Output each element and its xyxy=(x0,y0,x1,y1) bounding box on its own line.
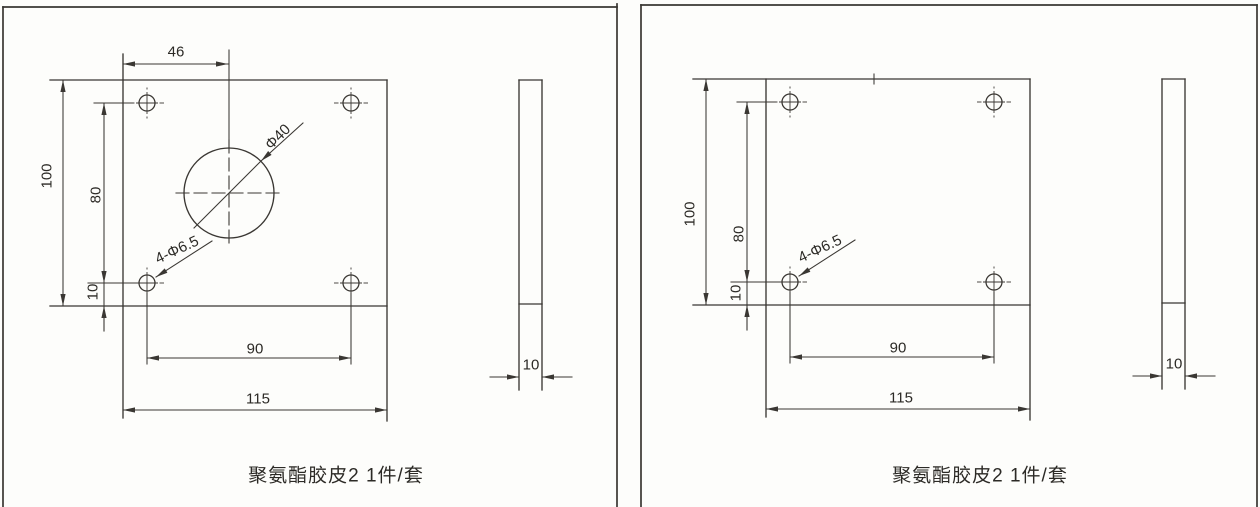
dim-115-label: 115 xyxy=(889,390,913,407)
dim-90-label: 90 xyxy=(247,341,264,358)
corner-hole-label: 4-Φ6.5 xyxy=(795,232,844,267)
dim-100-label: 100 xyxy=(682,201,699,226)
front-view: 4-Φ6.5 100 80 10 90 115 xyxy=(682,74,1031,420)
dim-10-label: 10 xyxy=(728,285,745,302)
caption-text: 聚氨酯胶皮2 1件/套 xyxy=(892,465,1068,487)
corner-hole-mark xyxy=(977,87,1011,118)
front-view: Φ40 4-Φ6.5 46 100 80 10 90 xyxy=(39,44,388,422)
dim-46-label: 46 xyxy=(168,44,185,61)
center-hole-label: Φ40 xyxy=(262,121,294,153)
side-view: 10 xyxy=(1133,79,1215,389)
corner-hole-mark xyxy=(130,88,164,119)
side-view: 10 xyxy=(490,80,572,390)
caption-text: 聚氨酯胶皮2 1件/套 xyxy=(248,465,424,487)
corner-hole-label: 4-Φ6.5 xyxy=(152,233,201,268)
side-dim-10-label: 10 xyxy=(523,357,540,374)
dim-80-label: 80 xyxy=(88,187,105,204)
phi40-diameter-line xyxy=(194,161,261,228)
drawing-canvas: Φ40 4-Φ6.5 46 100 80 10 90 xyxy=(0,0,1260,507)
dim-100-label: 100 xyxy=(39,163,56,188)
dim-115-label: 115 xyxy=(246,391,270,408)
left-panel: Φ40 4-Φ6.5 46 100 80 10 90 xyxy=(3,4,617,507)
dim-10-label: 10 xyxy=(85,284,102,301)
right-panel: 4-Φ6.5 100 80 10 90 115 xyxy=(641,5,1257,507)
corner-hole-mark xyxy=(334,88,368,119)
blueprint-page: Φ40 4-Φ6.5 46 100 80 10 90 xyxy=(0,0,1260,507)
side-dim-10-label: 10 xyxy=(1166,356,1183,373)
dim-90-label: 90 xyxy=(890,340,907,357)
corner-hole-mark xyxy=(773,87,807,118)
dim-80-label: 80 xyxy=(731,226,748,243)
